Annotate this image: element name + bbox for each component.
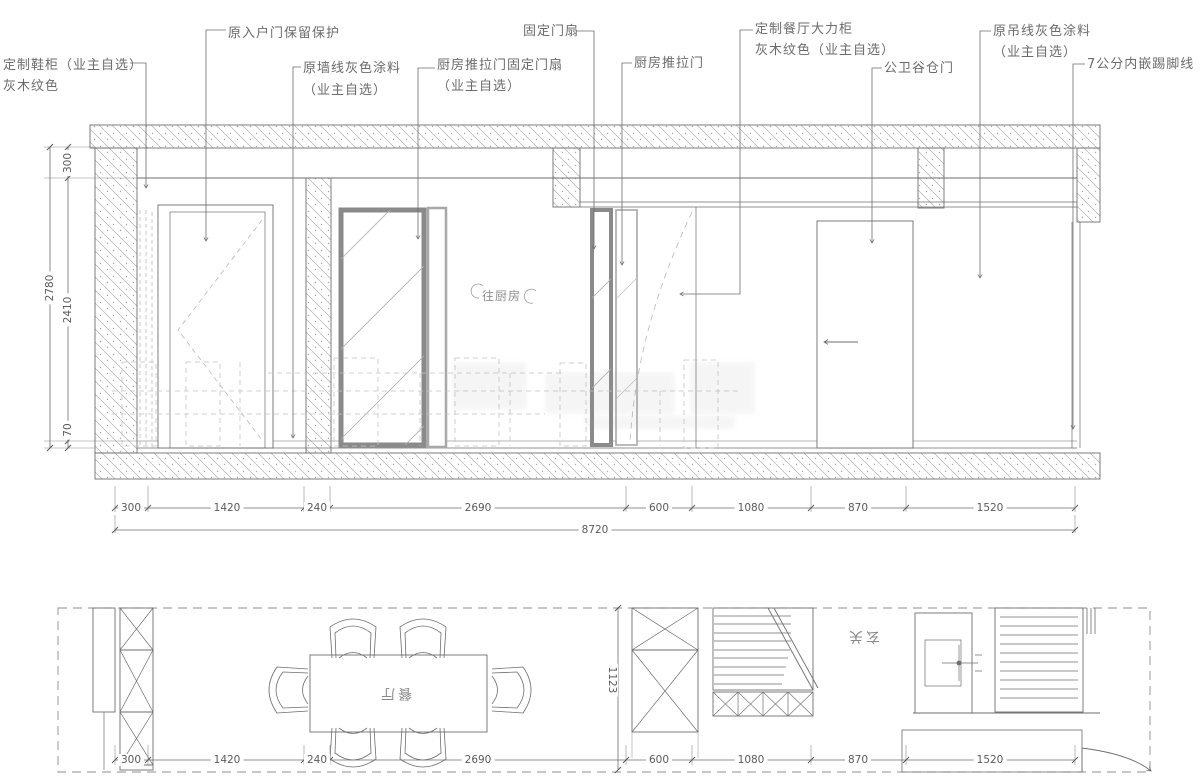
dim-seg-plan: 240 — [304, 754, 330, 766]
callout-wall-paint-2: （业主自选） — [303, 80, 387, 101]
dim-seg: 300 — [118, 502, 144, 514]
dim-seg-plan: 1080 — [735, 754, 768, 766]
callout-shoe-cabinet-2: 灰木纹色 — [3, 76, 59, 97]
plan-boundary — [58, 608, 1150, 772]
callout-entry-door: 原入户门保留保护 — [228, 23, 340, 44]
dim-300-left: 300 — [62, 150, 74, 176]
dim-seg: 240 — [304, 502, 330, 514]
callout-kitchen-slider: 厨房推拉门 — [634, 53, 704, 74]
dim-seg: 1080 — [735, 502, 768, 514]
callout-wall-paint: 原墙线灰色涂料 — [303, 58, 401, 79]
cad-sheet: 定制鞋柜（业主自选） 灰木纹色 原入户门保留保护 原墙线灰色涂料 （业主自选） … — [0, 0, 1200, 783]
entry-hall-label: 玄关 — [846, 627, 880, 647]
dim-70-left: 70 — [62, 420, 74, 439]
dim-seg: 600 — [646, 502, 672, 514]
entry-door-swing — [1082, 748, 1151, 772]
callout-shoe-cabinet: 定制鞋柜（业主自选） — [3, 55, 143, 76]
dim-seg: 1420 — [211, 502, 244, 514]
watermark-smudge — [545, 372, 675, 414]
barn-door — [817, 221, 913, 448]
watermark-smudge — [585, 416, 735, 429]
callout-barn-door: 公卫谷仓门 — [884, 58, 954, 79]
watermark-smudge — [452, 362, 527, 410]
dim-seg: 1520 — [974, 502, 1007, 514]
dim-seg-plan: 1520 — [974, 754, 1007, 766]
callout-fixed-panel-kitchen-2: （业主自选） — [437, 76, 521, 97]
kitchen-sliding-door — [300, 120, 715, 560]
dim-seg: 2690 — [462, 502, 495, 514]
callout-ceiling-paint: 原吊线灰色涂料 — [993, 21, 1091, 42]
plan-tall-cabinet — [632, 608, 698, 758]
plan-left-wall — [93, 608, 115, 770]
entry-door — [140, 205, 273, 448]
dim-seg-plan: 870 — [845, 754, 871, 766]
callout-ceiling-paint-2: （业主自选） — [993, 42, 1077, 63]
washbasin — [915, 613, 982, 713]
callout-dining-cabinet: 定制餐厅大力柜 — [755, 19, 853, 40]
watermark-smudge — [690, 362, 755, 414]
callout-dining-cabinet-2: 灰木纹色（业主自选） — [755, 40, 895, 61]
dim-seg-plan: 1420 — [211, 754, 244, 766]
plan-dimensions — [112, 605, 1078, 773]
louver-cabinet — [995, 608, 1095, 712]
callout-skirting: 7公分内嵌踢脚线 — [1087, 54, 1194, 75]
shoe-cabinet-hidden-lines — [140, 210, 152, 448]
to-kitchen-label: 往厨房 — [482, 287, 521, 304]
dim-2410-left: 2410 — [62, 294, 74, 327]
dining-room-label: 餐厅 — [378, 684, 412, 704]
dim-seg-plan: 600 — [646, 754, 672, 766]
elevation-view — [90, 120, 1100, 560]
dim-1123: 1123 — [606, 664, 618, 697]
dim-seg-plan: 2690 — [462, 754, 495, 766]
plan-view — [58, 608, 1151, 772]
stairs — [713, 608, 818, 716]
callout-fixed-panel-kitchen: 厨房推拉门固定门扇 — [437, 55, 563, 76]
callout-fixed-leaf: 固定门扇 — [523, 21, 579, 42]
dim-seg-plan: 300 — [118, 754, 144, 766]
dim-total: 8720 — [579, 524, 612, 536]
dim-2780-left: 2780 — [44, 272, 56, 305]
dim-seg: 870 — [845, 502, 871, 514]
